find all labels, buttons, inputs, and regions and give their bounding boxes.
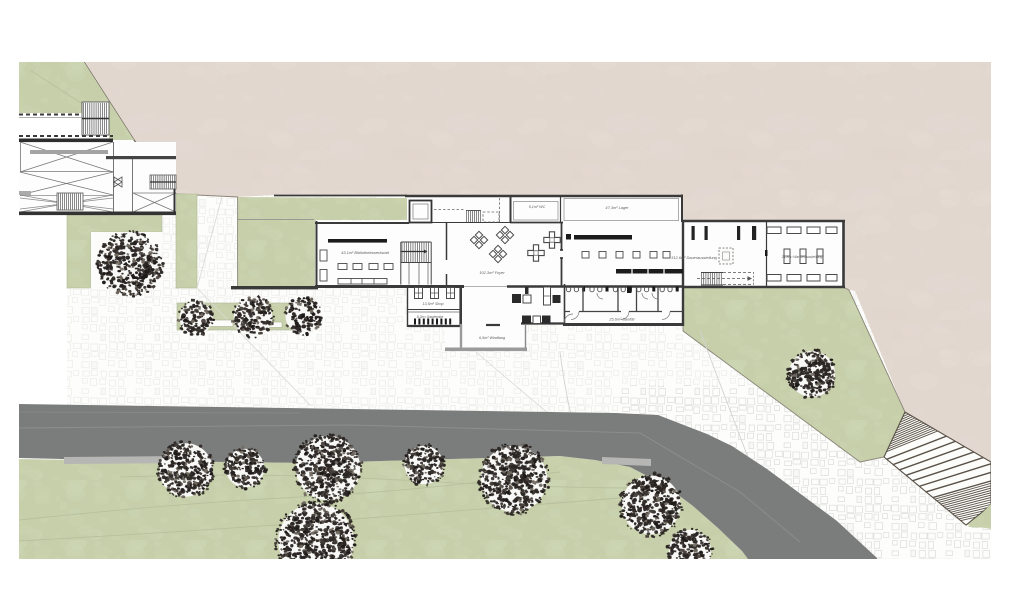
svg-text:47,3m² Lager: 47,3m² Lager [605,205,629,210]
svg-text:24,8m² Wanderausstellung: 24,8m² Wanderausstellung [781,255,823,259]
svg-text:5,1m² WC: 5,1m² WC [529,205,546,209]
svg-text:9,2m² Garderobe: 9,2m² Garderobe [417,315,444,319]
svg-text:312,6m² Dauerausstellung: 312,6m² Dauerausstellung [671,255,717,260]
svg-text:102,3m² Foyer: 102,3m² Foyer [479,270,505,275]
svg-text:25,6m² Sanitär: 25,6m² Sanitär [608,317,635,322]
svg-text:6,5m² Windfang: 6,5m² Windfang [479,336,506,340]
svg-text:43,1m² Bibliothekswerkstatt: 43,1m² Bibliothekswerkstatt [341,250,389,255]
svg-text:13,5m² Shop: 13,5m² Shop [422,302,443,306]
